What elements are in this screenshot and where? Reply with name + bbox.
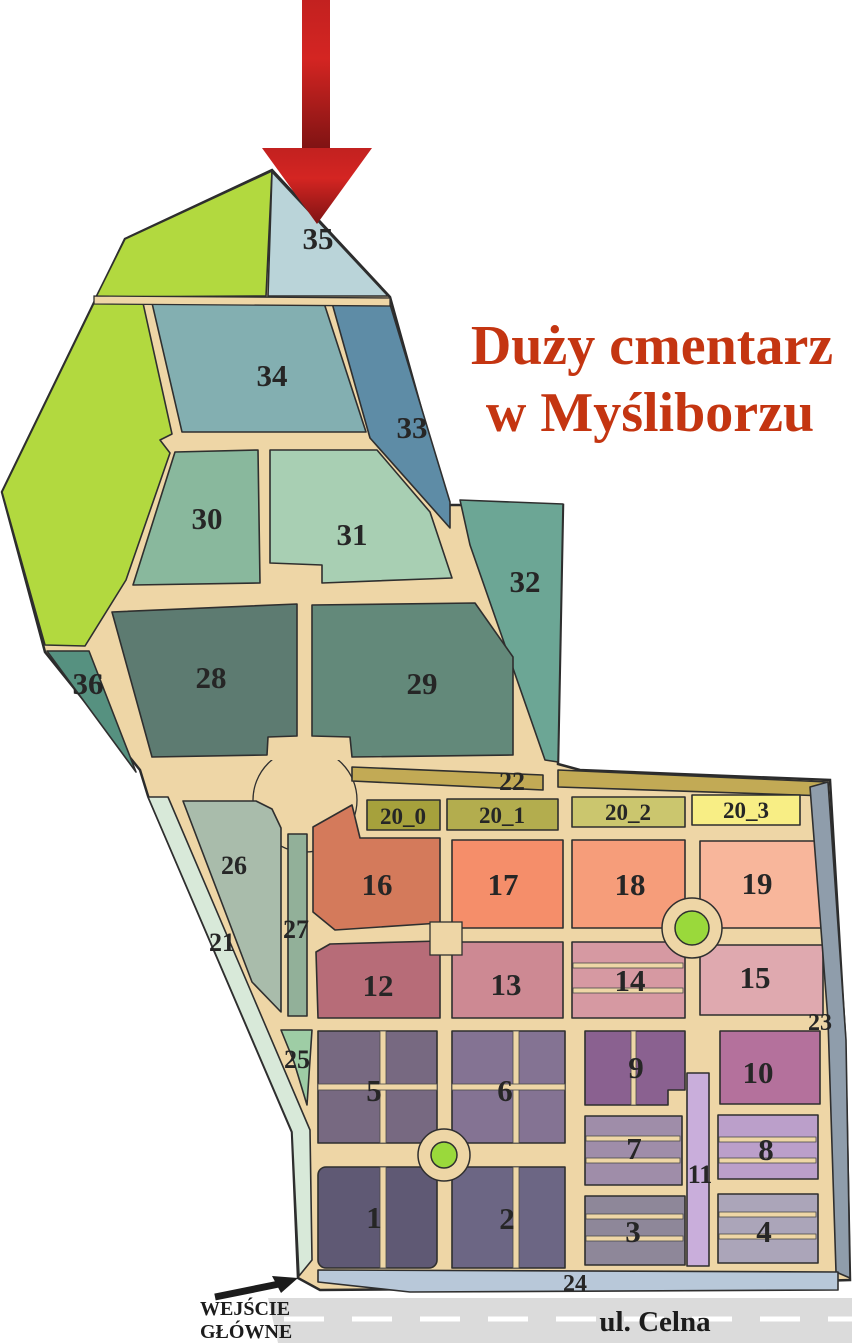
label-3: 3 [625, 1214, 641, 1249]
label-28: 28 [196, 660, 227, 695]
label-34: 34 [257, 358, 288, 393]
street-name: ul. Celna [599, 1306, 711, 1338]
label-31: 31 [337, 517, 368, 552]
label-4: 4 [756, 1214, 772, 1249]
label-20-1: 20_1 [479, 803, 525, 828]
map-title-line2: w Myśliborzu [486, 382, 814, 444]
label-32: 32 [510, 564, 541, 599]
label-6: 6 [497, 1073, 513, 1108]
label-27: 27 [283, 915, 309, 944]
label-16: 16 [362, 867, 393, 902]
section-green-upper [96, 171, 272, 297]
label-35: 35 [303, 221, 334, 256]
label-9: 9 [628, 1050, 644, 1085]
label-23: 23 [808, 1010, 832, 1036]
entrance-arrow-icon [215, 1283, 284, 1297]
label-26: 26 [221, 851, 247, 880]
label-7: 7 [626, 1131, 642, 1166]
roundabout-upper [662, 898, 722, 958]
main-entrance: WEJŚCIE GŁÓWNE [200, 1276, 298, 1343]
roundabout-upper-green-circle [675, 911, 709, 945]
cemetery-map: ul. Celna WEJŚCIE GŁÓWNE Duży cmentarz w… [0, 0, 852, 1343]
label-30: 30 [192, 501, 223, 536]
label-21: 21 [209, 928, 235, 957]
label-20-0: 20_0 [380, 804, 426, 829]
label-18: 18 [615, 867, 646, 902]
label-14: 14 [615, 963, 646, 998]
label-36: 36 [73, 666, 104, 701]
label-17: 17 [488, 867, 519, 902]
street-celna: ul. Celna [268, 1298, 852, 1343]
roundabout-lower-green-circle [431, 1142, 457, 1168]
cemetery-map-page: ul. Celna WEJŚCIE GŁÓWNE Duży cmentarz w… [0, 0, 852, 1343]
path-top-diagonal [94, 296, 390, 306]
label-11: 11 [688, 1160, 713, 1189]
label-1: 1 [366, 1200, 382, 1235]
label-13: 13 [491, 967, 522, 1002]
label-19: 19 [742, 866, 773, 901]
label-22: 22 [499, 767, 525, 796]
label-24: 24 [563, 1271, 587, 1297]
label-29: 29 [407, 666, 438, 701]
label-33: 33 [397, 410, 428, 445]
map-title: Duży cmentarz w Myśliborzu [471, 315, 833, 444]
label-25: 25 [284, 1045, 310, 1074]
label-20-2: 20_2 [605, 800, 651, 825]
label-15: 15 [740, 960, 771, 995]
entrance-label-line2: GŁÓWNE [200, 1319, 292, 1343]
roundabout-lower [418, 1129, 470, 1181]
label-2: 2 [499, 1201, 515, 1236]
map-title-line1: Duży cmentarz [471, 315, 833, 377]
entrance-label-line1: WEJŚCIE [200, 1296, 290, 1320]
label-10: 10 [743, 1055, 774, 1090]
label-8: 8 [758, 1132, 774, 1167]
label-12: 12 [363, 968, 394, 1003]
path-crossing-square [430, 922, 462, 955]
label-5: 5 [366, 1073, 382, 1108]
label-20-3: 20_3 [723, 798, 769, 823]
